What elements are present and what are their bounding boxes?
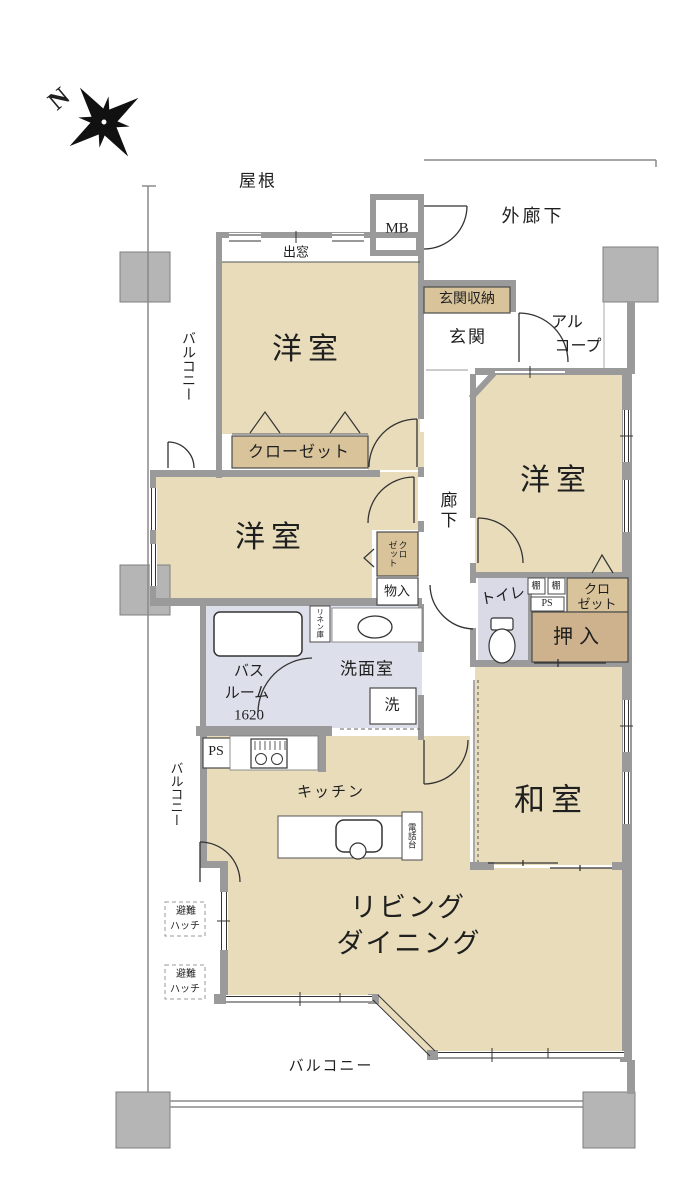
room-japanese (475, 667, 630, 865)
label-hatch1-1: 避難 (176, 907, 196, 917)
label-outer-corridor: 外廊下 (502, 207, 565, 225)
label-western-room-2: 洋室 (520, 466, 592, 496)
label-phone-stand: 電話台 (408, 823, 417, 849)
label-closet-right-1: クロ (584, 583, 610, 596)
faucet-icon (350, 843, 366, 859)
label-alcove-1: アル (551, 315, 583, 331)
door-balcony-top (168, 442, 194, 468)
door-toilet (430, 585, 473, 629)
toilet-bowl (489, 629, 515, 663)
label-closet-right-2: ゼット (577, 598, 616, 611)
label-entrance-storage: 玄関収納 (439, 293, 495, 307)
label-washroom: 洗面室 (340, 661, 394, 678)
vanity-sink (358, 616, 392, 638)
pillar (116, 1092, 170, 1148)
pillar (120, 252, 170, 302)
label-corridor: 廊下 (439, 491, 456, 531)
stove-icon (251, 739, 287, 768)
label-hatch1-2: ハッチ (170, 922, 200, 932)
label-roof: 屋根 (239, 173, 277, 190)
label-western-room-1: 洋室 (272, 335, 344, 365)
label-oshiire: 押入 (553, 627, 605, 647)
label-bath-2: ルーム (225, 687, 270, 702)
pillar (120, 565, 170, 615)
label-balcony-left-top: バルコニー (180, 331, 194, 401)
label-mb: MB (385, 222, 408, 237)
label-balcony-bottom: バルコニー (289, 1060, 374, 1075)
label-ps-small: PS (541, 599, 552, 609)
pillar (603, 247, 658, 302)
label-bath-1: バス (234, 665, 264, 680)
pillar (583, 1092, 635, 1148)
label-western-room-3: 洋室 (235, 523, 307, 553)
label-hatch2-1: 避難 (176, 970, 196, 980)
label-shelf-1: 棚 (531, 582, 540, 591)
label-living-2: ダイニング (337, 931, 482, 958)
label-japanese-room: 和室 (514, 785, 588, 816)
label-hatch2-2: ハッチ (170, 985, 200, 995)
label-closet-small-col1: クロ (398, 541, 407, 568)
label-kitchen: キッチン (297, 786, 365, 801)
label-closet-small-col2: ゼット (388, 541, 397, 568)
floorplan-page: N 屋根 外廊下 MB 出窓 玄関収納 玄関 アル コープ バルコニー 洋室 ク… (0, 0, 690, 1200)
label-linen: リネン庫 (316, 608, 324, 638)
label-closet-small: クロゼット (388, 541, 407, 568)
label-shelf-2: 棚 (551, 582, 560, 591)
compass-north-icon (46, 64, 163, 181)
toilet-tank (491, 618, 513, 630)
label-washer: 洗 (384, 699, 399, 714)
label-ps: PS (208, 745, 224, 759)
label-balcony-left-bottom: バルコニー (170, 762, 183, 827)
label-bay-window: 出窓 (283, 246, 309, 259)
bathtub (214, 612, 302, 656)
label-closet-long: クローゼット (248, 445, 350, 461)
label-living-1: リビング (350, 895, 466, 922)
label-alcove-2: コープ (554, 339, 601, 355)
door-exterior (424, 206, 467, 249)
label-storage: 物入 (384, 585, 410, 598)
label-entrance: 玄関 (449, 329, 487, 346)
label-bath-3: 1620 (234, 709, 264, 724)
